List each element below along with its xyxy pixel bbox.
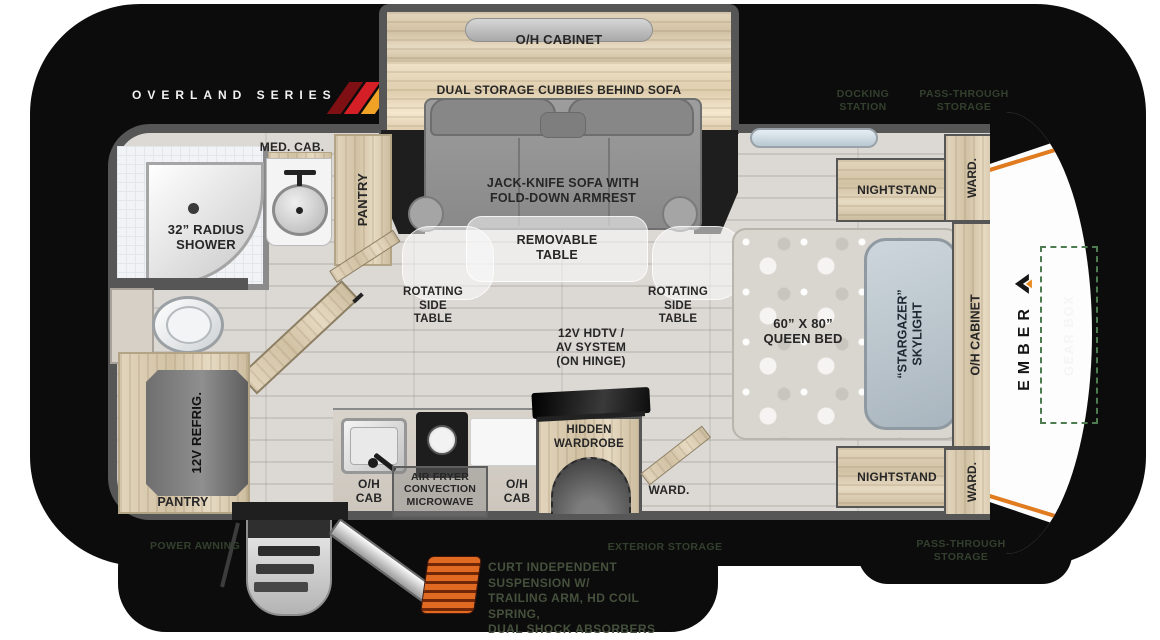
- oh-cabinet-label: O/H CABINET: [389, 32, 729, 47]
- floorplan-image: OVERLAND SERIES DOCKINGSTATION PASS-THRO…: [0, 0, 1160, 640]
- toilet-bowl: [166, 306, 212, 344]
- entry-doorway: [232, 502, 348, 520]
- flame-icon: [1015, 273, 1035, 295]
- stargazer-skylight: “STARGAZER”SKYLIGHT: [864, 238, 958, 430]
- sofa-back-cushion-right: [568, 98, 694, 136]
- docking-station-label: DOCKINGSTATION: [822, 88, 904, 114]
- power-awning-label: POWER AWNING: [150, 540, 250, 553]
- nightstand-top-label: NIGHTSTAND: [838, 183, 956, 197]
- rotating-table-label-right: ROTATINGSIDETABLE: [630, 286, 726, 327]
- exterior-storage-label: EXTERIOR STORAGE: [590, 541, 740, 554]
- pantry-bottom-label: PANTRY: [138, 495, 228, 510]
- entry-step-tread-1: [258, 546, 320, 556]
- microwave-label: AIR FRYERCONVECTIONMICROWAVE: [394, 471, 486, 508]
- hdtv-label: 12V HDTV /AV SYSTEM(ON HINGE): [534, 326, 648, 368]
- queen-bed-label: 60” X 80”QUEEN BED: [744, 316, 862, 347]
- fridge-label: 12V REFRIG.: [146, 372, 248, 494]
- shower-label: 32” RADIUSSHOWER: [156, 222, 256, 253]
- rotating-table-label-left: ROTATINGSIDETABLE: [385, 286, 481, 327]
- removable-table-label: REMOVABLETABLE: [497, 233, 617, 263]
- pass-through-storage-label-top: PASS-THROUGHSTORAGE: [914, 88, 1014, 114]
- bath-faucet-stem: [297, 170, 302, 186]
- counter-flip-up: [470, 418, 538, 466]
- ember-wordmark: EMBER: [1016, 303, 1034, 391]
- pass-through-storage-label-bottom: PASS-THROUGHSTORAGE: [906, 538, 1016, 564]
- oh-cab-label-left: O/HCAB: [346, 477, 392, 505]
- nightstand-bottom-label: NIGHTSTAND: [838, 470, 956, 484]
- oh-cab-label-right: O/HCAB: [494, 477, 540, 505]
- kitchen-faucet-base: [368, 458, 378, 468]
- suspension-icon: [420, 556, 482, 614]
- series-title: OVERLAND SERIES: [132, 88, 342, 102]
- entry-step-tread-2: [256, 564, 314, 574]
- sofa-back-cushion-left: [430, 98, 556, 136]
- bath-sink-drain: [296, 207, 303, 214]
- entry-step-platform: [248, 520, 330, 538]
- entry-step-tread-3: [254, 582, 308, 592]
- cooktop-burner: [427, 425, 457, 455]
- shower-drain: [188, 203, 199, 214]
- gear-box: GEAR BOX: [1040, 246, 1098, 424]
- dual-storage-label: DUAL STORAGE CUBBIES BEHIND SOFA: [389, 83, 729, 97]
- bedroom-window: [750, 128, 878, 148]
- hidden-wardrobe-label: HIDDENWARDROBE: [538, 424, 640, 451]
- suspension-note: CURT INDEPENDENT SUSPENSION W/ TRAILING …: [488, 560, 678, 638]
- sofa-label: JACK-KNIFE SOFA WITHFOLD-DOWN ARMREST: [443, 176, 683, 206]
- sofa-center-console: [540, 112, 586, 138]
